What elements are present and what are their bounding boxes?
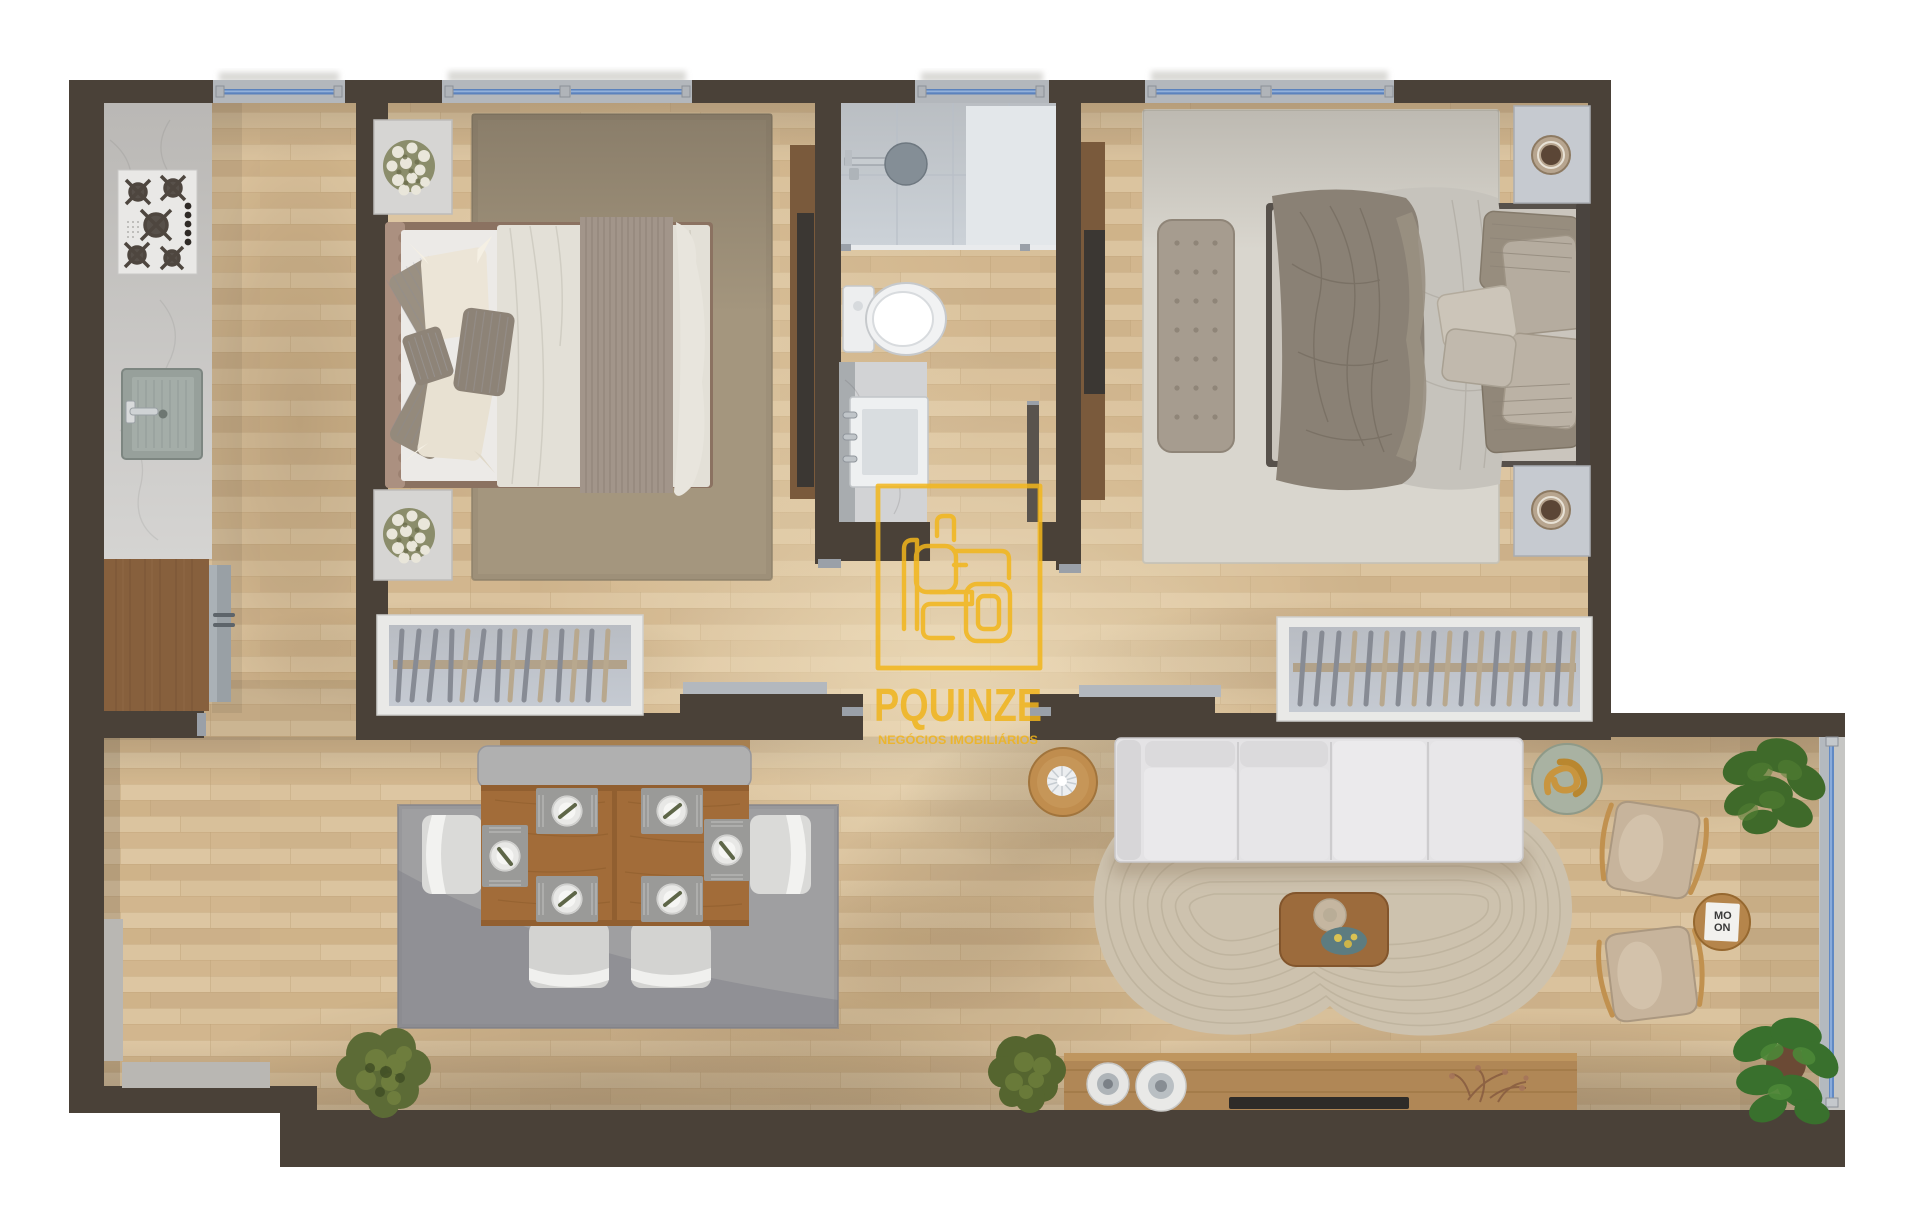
svg-text:ON: ON (1714, 922, 1731, 934)
svg-text:MO: MO (1714, 910, 1732, 922)
svg-text:NEGÓCIOS IMOBILIÁRIOS: NEGÓCIOS IMOBILIÁRIOS (878, 732, 1038, 747)
svg-text:PQUINZE: PQUINZE (874, 679, 1042, 731)
